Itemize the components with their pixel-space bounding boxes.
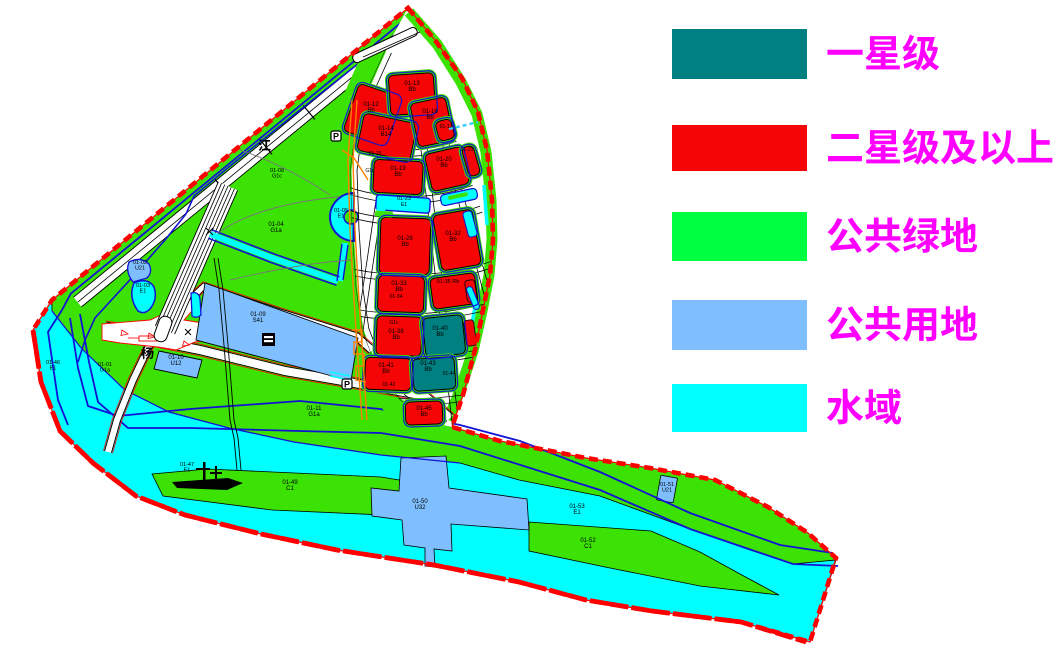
svg-text:G1c: G1c bbox=[389, 320, 399, 326]
svg-text:U32: U32 bbox=[414, 505, 426, 511]
svg-text:E1: E1 bbox=[401, 202, 407, 208]
svg-text:U21: U21 bbox=[662, 488, 672, 494]
svg-text:E1: E1 bbox=[50, 366, 57, 372]
svg-text:E1: E1 bbox=[140, 289, 147, 295]
svg-text:C1: C1 bbox=[584, 544, 592, 550]
svg-text:01-35 Rb: 01-35 Rb bbox=[437, 279, 460, 285]
svg-text:Bb: Bb bbox=[394, 172, 402, 178]
svg-text:Bb: Bb bbox=[395, 287, 403, 293]
svg-text:Bb: Bb bbox=[367, 108, 375, 114]
svg-text:01-17: 01-17 bbox=[440, 124, 453, 130]
svg-text:01-42: 01-42 bbox=[383, 382, 396, 388]
svg-text:B14: B14 bbox=[381, 132, 392, 138]
svg-text:P: P bbox=[333, 132, 339, 142]
svg-text:G1a: G1a bbox=[100, 368, 111, 374]
svg-text:01-34: 01-34 bbox=[390, 294, 403, 300]
svg-text:Bb: Bb bbox=[424, 367, 432, 373]
svg-text:Bb: Bb bbox=[449, 237, 457, 243]
svg-text:Bb: Bb bbox=[392, 335, 400, 341]
svg-text:Bb: Bb bbox=[426, 115, 434, 121]
svg-text:01-15: 01-15 bbox=[369, 151, 382, 157]
svg-text:Bb: Bb bbox=[420, 412, 428, 418]
svg-text:Bb: Bb bbox=[382, 369, 390, 375]
svg-text:P: P bbox=[344, 380, 350, 390]
svg-text:E1: E1 bbox=[184, 468, 191, 474]
svg-text:G1c: G1c bbox=[365, 168, 375, 174]
svg-text:G1c: G1c bbox=[272, 174, 282, 180]
svg-text:Bb: Bb bbox=[436, 332, 444, 338]
svg-text:E1: E1 bbox=[338, 214, 345, 220]
svg-text:G1a: G1a bbox=[270, 228, 282, 234]
svg-text:E1: E1 bbox=[573, 510, 581, 516]
svg-text:Bb: Bb bbox=[408, 87, 416, 93]
svg-text:S41: S41 bbox=[253, 318, 264, 324]
svg-text:01-21: 01-21 bbox=[461, 147, 474, 153]
svg-text:Bb: Bb bbox=[440, 163, 448, 169]
svg-text:U21: U21 bbox=[135, 266, 145, 272]
svg-text:U12: U12 bbox=[170, 361, 182, 367]
svg-text:G1a: G1a bbox=[308, 412, 320, 418]
svg-text:01-44: 01-44 bbox=[443, 371, 456, 377]
svg-text:C1: C1 bbox=[286, 486, 294, 492]
svg-text:Bb: Bb bbox=[401, 242, 409, 248]
